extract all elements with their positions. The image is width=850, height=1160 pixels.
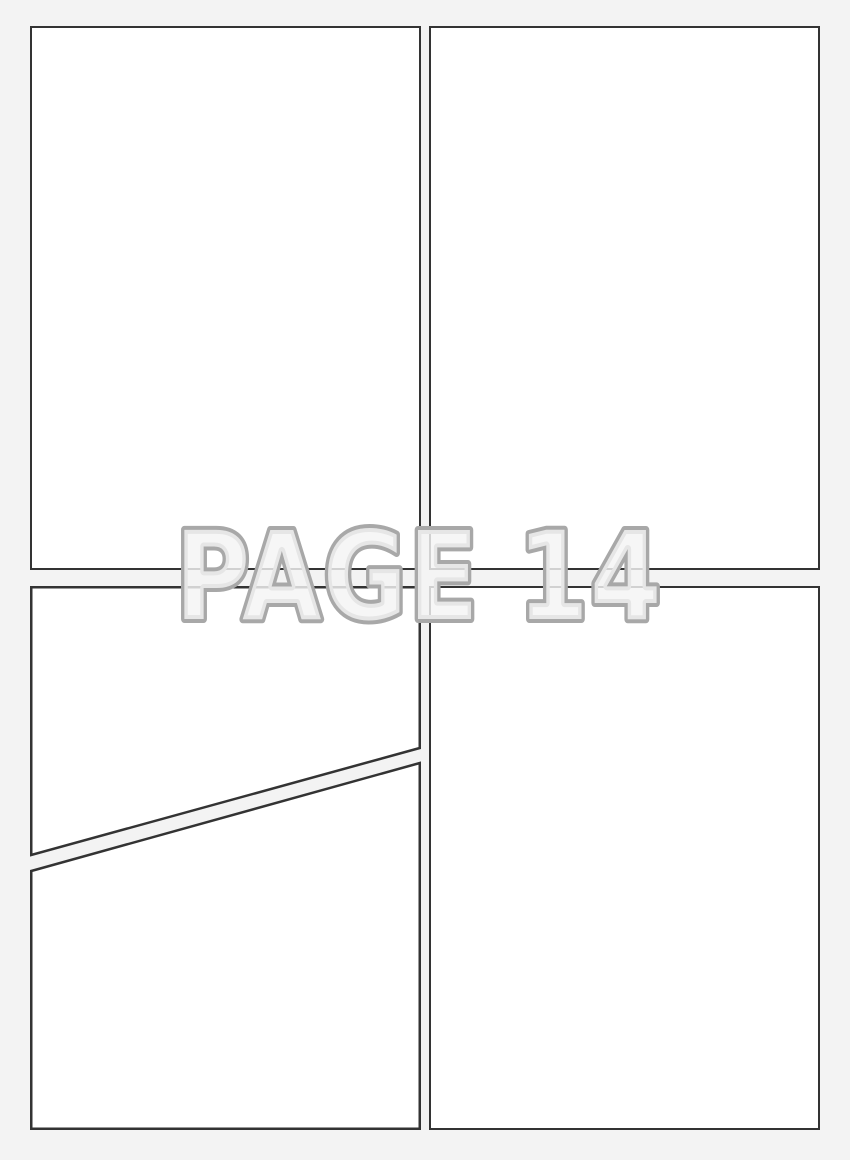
comic-panel-top-right — [429, 26, 820, 570]
comic-page-template: PAGE 14 — [0, 0, 850, 1160]
comic-panel-bottom-left-group — [30, 586, 421, 1130]
comic-panel-top-left — [30, 26, 421, 570]
comic-panel-bottom-right — [429, 586, 820, 1130]
